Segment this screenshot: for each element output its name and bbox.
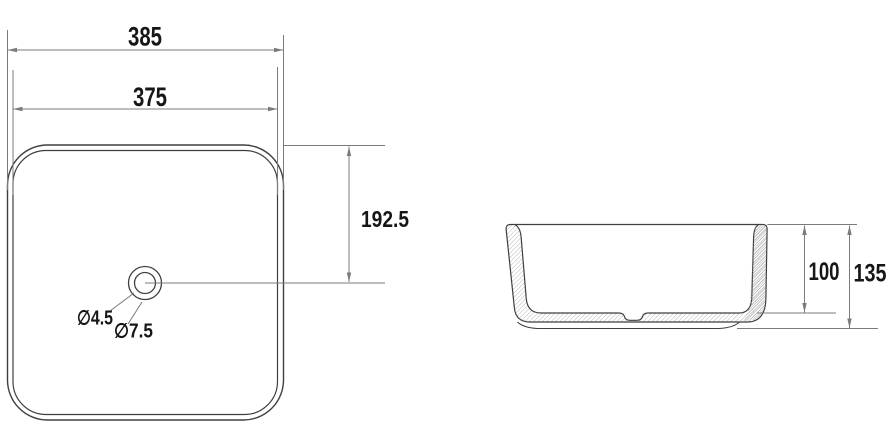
dimension-label-overall-width: 385: [128, 22, 162, 52]
top-view-dimension-lines: [8, 30, 386, 324]
top-view-dimension-text: 385 375 192.5 ∅4.5 ∅7.5: [77, 22, 409, 343]
basin-technical-drawing: 385 375 192.5 ∅4.5 ∅7.5 100 135: [0, 0, 888, 436]
basin-section-wall: [506, 225, 767, 323]
dimension-label-overall-height: 135: [854, 260, 887, 288]
basin-foot-outline: [518, 322, 740, 329]
dimension-label-center-offset: 192.5: [361, 206, 409, 232]
basin-section-wall-right-dense-hatch: [741, 226, 767, 321]
side-view: [506, 225, 767, 329]
dimension-label-drain-small: ∅4.5: [77, 308, 113, 330]
leader-line-drain-small: [110, 293, 134, 311]
dimension-label-inner-width: 375: [133, 82, 167, 112]
side-view-dimension-text: 100 135: [809, 258, 887, 288]
dimension-label-inner-depth: 100: [809, 258, 840, 286]
drawing-canvas: 385 375 192.5 ∅4.5 ∅7.5 100 135: [0, 0, 888, 436]
dimension-label-drain-large: ∅7.5: [114, 321, 153, 343]
